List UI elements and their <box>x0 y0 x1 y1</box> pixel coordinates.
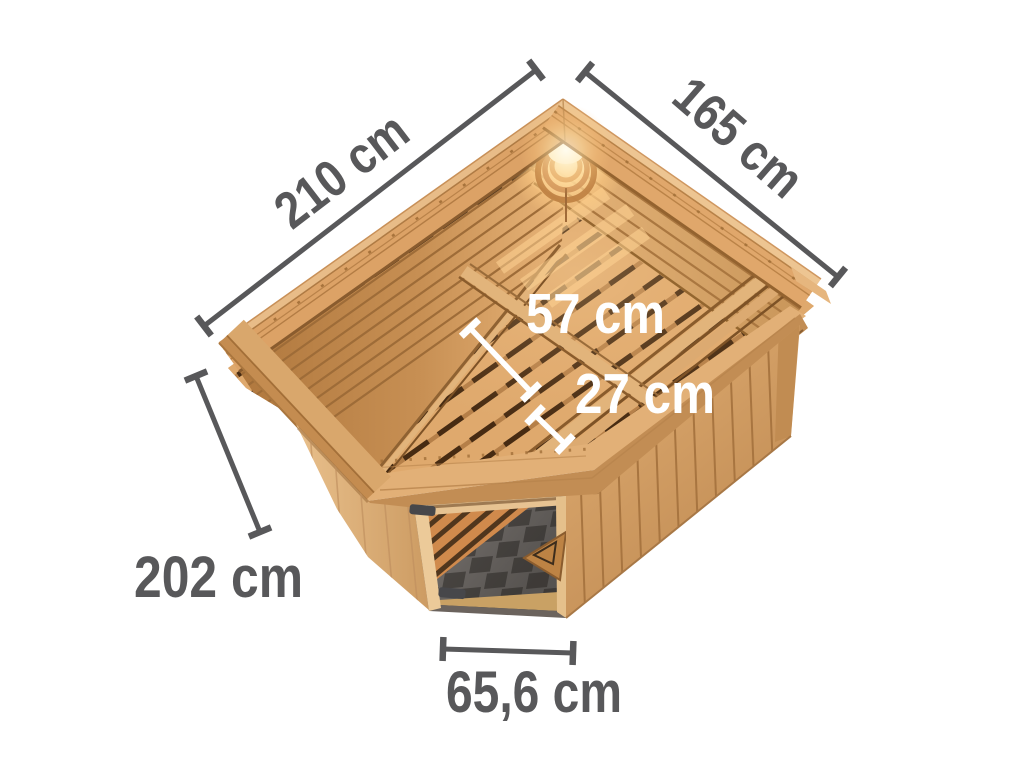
svg-text:27 cm: 27 cm <box>575 362 715 426</box>
svg-text:65,6 cm: 65,6 cm <box>446 660 622 725</box>
svg-text:57 cm: 57 cm <box>526 282 665 346</box>
svg-text:202 cm: 202 cm <box>134 545 303 610</box>
